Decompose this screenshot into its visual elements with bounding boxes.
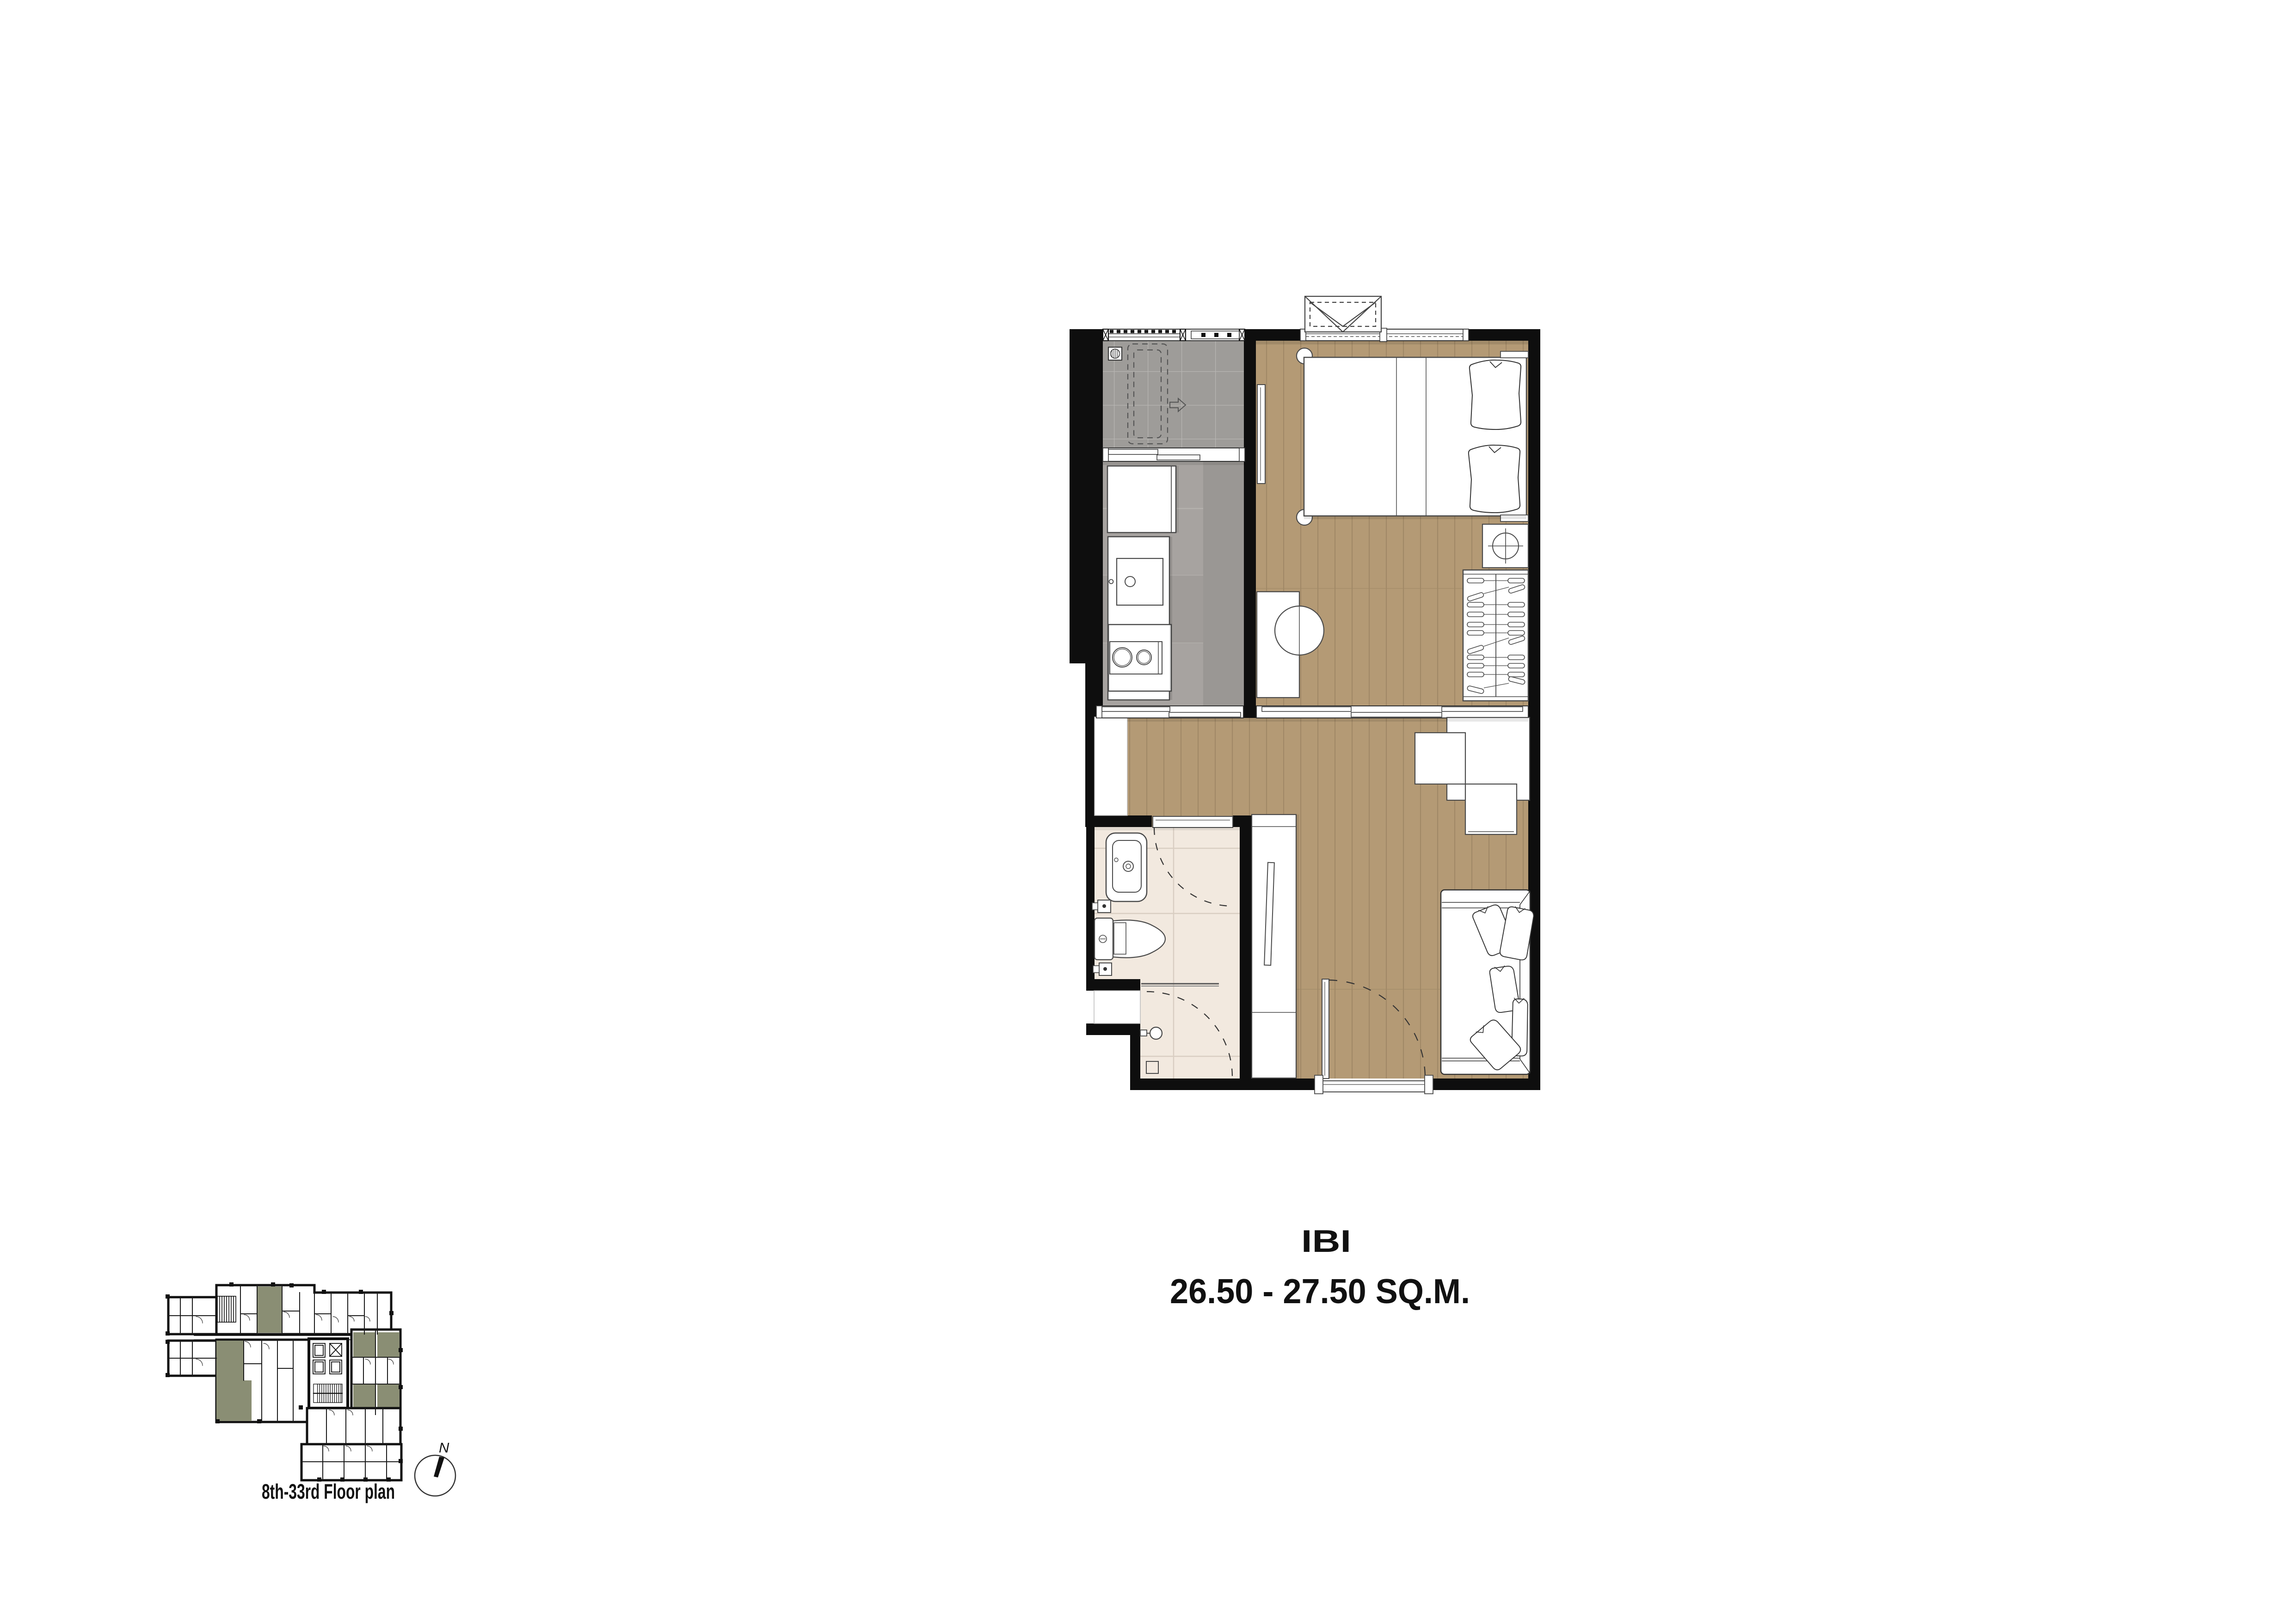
svg-text:8th-33rd Floor plan: 8th-33rd Floor plan bbox=[262, 1480, 395, 1503]
svg-text:26.50 - 27.50 SQ.M.: 26.50 - 27.50 SQ.M. bbox=[1170, 1272, 1470, 1311]
svg-text:IBI: IBI bbox=[1301, 1224, 1351, 1259]
svg-text:N: N bbox=[439, 1440, 449, 1456]
